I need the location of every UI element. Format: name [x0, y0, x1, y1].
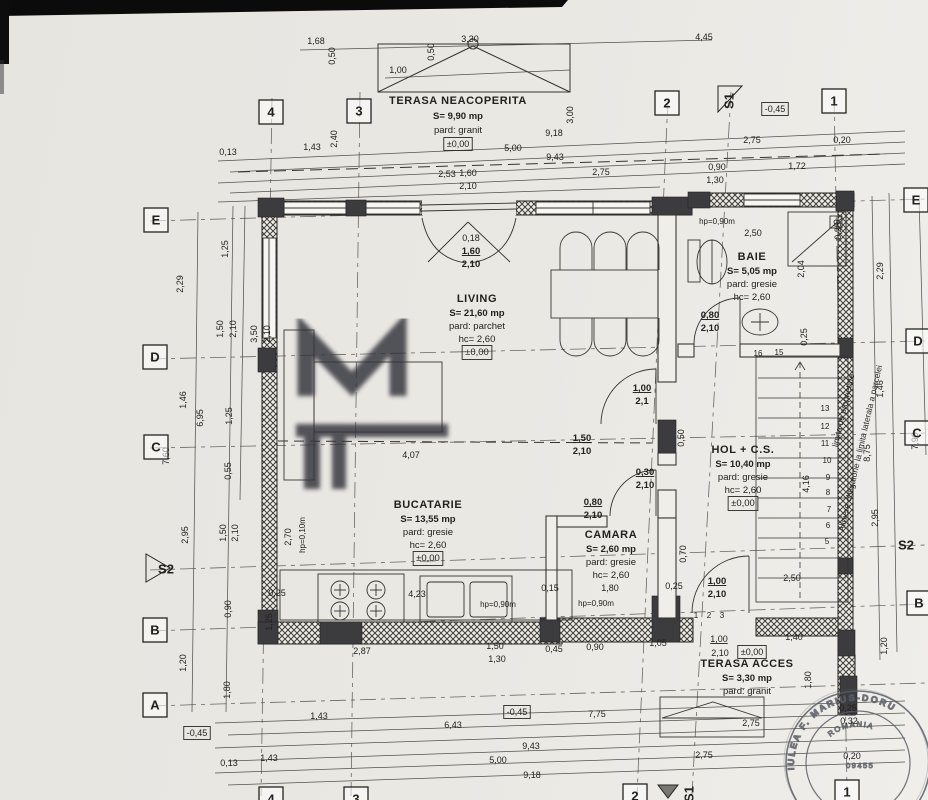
dim-label: 0,50	[327, 47, 337, 65]
room-detail: pard: gresie	[403, 527, 453, 538]
grid-marker-label: S2	[158, 562, 174, 577]
dim-label: 1,25	[224, 407, 234, 425]
dim-label: 2,10	[636, 480, 655, 491]
grid-marker-label: E	[152, 213, 161, 228]
dim-label: 2,75	[743, 135, 761, 145]
dim-label: 7,75	[588, 709, 606, 719]
room-detail: pard: granit	[723, 686, 771, 697]
grid-marker-2: 2	[655, 91, 679, 115]
dim-label: hp=0,90m	[699, 217, 735, 226]
dim-label: 3,00	[565, 106, 575, 124]
dim-label: 4,07	[402, 450, 420, 460]
dim-label: 2,75	[592, 167, 610, 177]
dim-label: 3	[720, 611, 725, 620]
dim-label: 2,50	[783, 573, 801, 583]
dim-label: 0,25	[268, 588, 286, 598]
room-detail: S= 5,05 mp	[727, 266, 777, 277]
dim-label: 1,43	[260, 753, 278, 763]
room-detail: S= 9,90 mp	[433, 111, 483, 122]
dim-label: 0,32	[840, 716, 858, 726]
dim-label: 0,70	[678, 545, 688, 563]
dim-label: 1,50	[218, 524, 228, 542]
grid-marker-E: E	[904, 188, 928, 212]
room-detail: ±0,00	[416, 553, 440, 564]
room-name: HOL + C.S.	[712, 444, 775, 456]
dim-label: 2,10	[701, 323, 720, 334]
dim-label: hp=0,10m	[298, 517, 307, 553]
dim-label: 4,23	[408, 589, 426, 599]
room-detail: pard: parchet	[449, 321, 505, 332]
dim-label: 0,15	[541, 583, 559, 593]
grid-marker-D: D	[906, 329, 928, 353]
room-detail: S= 10,40 mp	[715, 459, 770, 470]
room-detail: S= 21,60 mp	[449, 308, 504, 319]
dim-label: 1,50	[486, 641, 504, 651]
dim-label: -0,45	[507, 707, 528, 717]
dim-label: 1,00	[708, 576, 727, 587]
room-detail: pard: gresie	[586, 557, 636, 568]
dim-label: 1,80	[222, 681, 232, 699]
dim-label: 1,00	[389, 65, 407, 75]
dim-label: 0,25	[839, 703, 857, 713]
room-detail: S= 3,30 mp	[722, 673, 772, 684]
room-detail: pard: gresie	[727, 279, 777, 290]
dim-label: 5,00	[504, 143, 522, 153]
grid-marker-A: A	[143, 693, 167, 717]
dim-label: 1,05	[649, 638, 667, 648]
grid-marker-E: E	[144, 208, 168, 232]
dim-label: 0,90	[708, 162, 726, 172]
dim-label: 6,43	[444, 720, 462, 730]
dim-label: 0,50	[426, 43, 436, 61]
dim-label: 2	[707, 611, 712, 620]
dim-label: 2,40	[329, 130, 339, 148]
dim-label: 9	[826, 473, 831, 482]
dim-label: 2,10	[228, 320, 238, 338]
dim-label: ±0,00	[447, 139, 469, 149]
dim-label: 1,40	[785, 632, 803, 642]
dim-label: 0,90	[223, 600, 233, 618]
room-detail: hc= 2,60	[593, 570, 630, 581]
dim-label: 4,16	[801, 475, 811, 493]
dim-label: 2,04	[796, 260, 806, 278]
grid-marker-C: C	[905, 421, 928, 445]
toilet-tank	[688, 240, 700, 282]
room-name: TERASA NEACOPERITA	[389, 95, 527, 107]
dim-label: 12	[821, 422, 830, 431]
dim-label: 13	[821, 404, 830, 413]
grid-marker-1: 1	[835, 780, 859, 800]
grid-marker-label: C	[912, 426, 922, 441]
chair	[560, 232, 592, 270]
dim-label: 2,10	[462, 259, 481, 270]
dim-label: 0,55	[223, 462, 233, 480]
grid-marker-label: 4	[267, 792, 275, 800]
grid-marker-S1: S1	[682, 786, 697, 800]
dim-label: 0,25	[665, 581, 683, 591]
dim-label: 1,25	[220, 240, 230, 258]
grid-marker-label: 2	[631, 789, 638, 800]
grid-marker-2: 2	[623, 784, 647, 800]
grid-marker-label: S1	[682, 786, 697, 800]
room-detail: hc= 2,60	[734, 292, 771, 303]
dining-table	[551, 270, 658, 318]
grid-marker-label: 2	[663, 96, 670, 111]
grid-marker-label: B	[150, 623, 159, 638]
dim-label: 2,10	[573, 446, 592, 457]
room-detail: hc= 2,60	[725, 485, 762, 496]
grid-marker-label: C	[151, 440, 161, 455]
room-detail: pard: granit	[434, 125, 482, 136]
dim-label: 0,80	[701, 310, 720, 321]
dim-label: 2,29	[875, 262, 885, 280]
dim-label: 3,30	[461, 34, 479, 44]
grid-marker-3: 3	[344, 787, 368, 800]
kitchen-counter	[280, 570, 572, 622]
grid-marker-label: 4	[267, 105, 275, 120]
dim-label: 1,68	[307, 36, 325, 46]
dim-label: hp=0,90m	[480, 600, 516, 609]
dim-label: 2,75	[695, 750, 713, 760]
grid-marker-label: E	[912, 193, 921, 208]
dim-label: 1	[694, 611, 699, 620]
dim-label: 0,90	[586, 642, 604, 652]
grid-marker-label: 3	[355, 104, 362, 119]
dim-label: 2,50	[744, 228, 762, 238]
sink	[420, 576, 512, 622]
terrace-steps	[660, 697, 764, 737]
dim-label: 0,20	[843, 751, 861, 761]
dim-label: 6	[826, 521, 831, 530]
room-name: LIVING	[457, 293, 497, 305]
dim-label: 1,43	[303, 142, 321, 152]
grid-marker-B: B	[907, 591, 928, 615]
room-detail: pard: gresie	[718, 472, 768, 483]
dim-label: 0,25	[833, 222, 843, 240]
dim-label: 0,25	[799, 328, 809, 346]
dim-label: 1,80	[803, 671, 813, 689]
grid-marker-1: 1	[822, 89, 846, 113]
dim-label: 11	[821, 439, 830, 448]
north-triangle	[658, 785, 678, 798]
dim-label: 1,00	[633, 383, 652, 394]
dim-label: 9,43	[522, 741, 540, 751]
dim-label: 1,46	[178, 391, 188, 409]
dim-label: 2,75	[742, 718, 760, 728]
grid-marker-label: D	[150, 350, 159, 365]
dim-label: 1,72	[788, 161, 806, 171]
dim-label: 1,00	[710, 634, 728, 644]
dim-label: 0,13	[220, 758, 238, 768]
grid-marker-4: 4	[259, 787, 283, 800]
dim-label: 3,50	[249, 325, 259, 343]
room-detail: hc= 2,60	[410, 540, 447, 551]
dim-label: 5,00	[489, 755, 507, 765]
dim-label: 8	[826, 488, 831, 497]
scan-artifacts	[0, 0, 568, 94]
grid-marker-label: A	[150, 698, 160, 713]
stamp-number: 09455	[846, 761, 874, 770]
grid-marker-label: S1	[722, 93, 737, 109]
dim-label: ±0,00	[741, 647, 763, 657]
room-name: CAMARA	[585, 529, 637, 541]
grid-marker-3: 3	[347, 99, 371, 123]
dim-label: 1,80	[601, 583, 619, 593]
dim-label: 1,50	[573, 433, 592, 444]
stove	[318, 574, 404, 622]
dim-label: 2,10	[230, 524, 240, 542]
room-detail: ±0,00	[731, 498, 755, 509]
dim-label: 2,29	[175, 275, 185, 293]
dim-label: 2,10	[711, 648, 729, 658]
dim-label: 1,30	[706, 175, 724, 185]
dim-label: 1,20	[879, 637, 889, 655]
dim-label: 2,10	[708, 589, 727, 600]
dim-label: 0,45	[545, 644, 563, 654]
grid-marker-label: 1	[830, 94, 837, 109]
dim-label: 10	[823, 456, 832, 465]
dim-label: 2,1	[635, 396, 649, 407]
grid-marker-label: 3	[352, 792, 359, 800]
room-detail: S= 13,55 mp	[400, 514, 455, 525]
grid-marker-S2: S2	[158, 562, 174, 577]
dim-label: 0,18	[462, 233, 480, 243]
room-name: BAIE	[738, 251, 767, 263]
dim-label: 2,95	[180, 526, 190, 544]
dim-label: 1,60	[459, 168, 477, 178]
dim-label: 6,95	[195, 409, 205, 427]
dim-label: 2,87	[353, 646, 371, 656]
dim-label: 2,10	[262, 325, 272, 343]
grid-marker-4: 4	[259, 100, 283, 124]
dim-label: 0,80	[584, 497, 603, 508]
room-name: TERASA ACCES	[700, 658, 793, 670]
grid-marker-S1: S1	[722, 93, 737, 109]
dim-label: 1,50	[215, 320, 225, 338]
dim-label: 0,20	[833, 135, 851, 145]
dim-label: 0,50	[676, 429, 686, 447]
dim-label: 2,10	[459, 181, 477, 191]
room-detail: S= 2,60 mp	[586, 544, 636, 555]
room-name: BUCATARIE	[394, 499, 463, 511]
dim-label: 15	[775, 348, 784, 357]
dim-label: -0,45	[187, 728, 208, 738]
dim-label: 0,30	[636, 467, 655, 478]
dim-label: 1,60	[462, 246, 481, 257]
grid-marker-S2: S2	[898, 538, 914, 553]
dim-label: -0,45	[765, 104, 786, 114]
dim-label: 5	[825, 537, 830, 546]
dim-label: 9,18	[523, 770, 541, 780]
grid-marker-label: B	[914, 596, 923, 611]
dim-label: hp=0,90m	[578, 599, 614, 608]
dim-label: 0,13	[219, 147, 237, 157]
grid-marker-D: D	[143, 345, 167, 369]
dim-label: 9,43	[546, 152, 564, 162]
grid-marker-B: B	[143, 618, 167, 642]
dim-label: 1,30	[488, 654, 506, 664]
grid-marker-label: 1	[843, 785, 850, 800]
grid-marker-C: C	[144, 435, 168, 459]
floor-plan-sheet: IULEA F. MARIUS-DORU ROMANIA 09455 1,680…	[0, 0, 928, 800]
grid-marker-label: D	[913, 334, 922, 349]
dim-label: 1,20	[178, 654, 188, 672]
dim-label: 7	[827, 505, 832, 514]
dim-label: 2,53	[438, 169, 456, 179]
floor-plan-drawing: IULEA F. MARIUS-DORU ROMANIA 09455 1,680…	[0, 0, 928, 800]
dim-label: 1,43	[310, 711, 328, 721]
dim-label: 9,18	[545, 128, 563, 138]
room-detail: hc= 2,60	[459, 334, 496, 345]
grid-marker-label: S2	[898, 538, 914, 553]
dim-label: 2,10	[584, 510, 603, 521]
watermark	[296, 334, 448, 489]
room-detail: ±0,00	[465, 347, 489, 358]
dim-label: 2,95	[870, 509, 880, 527]
dim-label: 16	[754, 349, 763, 358]
dim-label: 4,45	[695, 32, 713, 42]
dim-label: 1,25	[264, 613, 274, 631]
dim-label: 2,70	[283, 528, 293, 546]
